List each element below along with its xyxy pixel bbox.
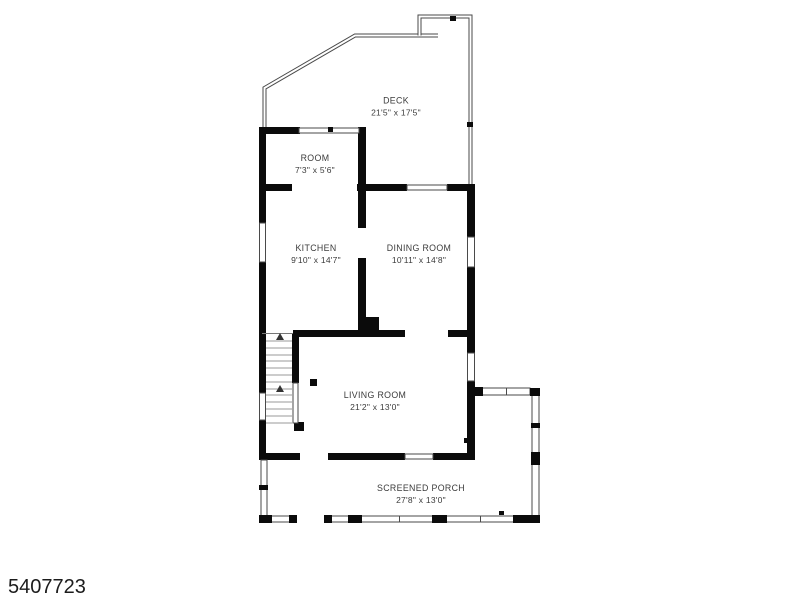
deck-railing — [265, 16, 474, 184]
wall-tick — [464, 438, 469, 443]
porch-post — [348, 515, 362, 523]
wall-segment — [467, 267, 475, 353]
room-labels: DECK 21'5" x 17'5" ROOM 7'3" x 5'6" KITC… — [291, 96, 465, 506]
porch-post — [531, 452, 540, 465]
window — [260, 393, 266, 420]
porch-post — [259, 515, 272, 523]
porch-post — [259, 485, 268, 490]
room-dims-living-room: 21'2" x 13'0" — [350, 402, 400, 412]
window — [468, 237, 475, 267]
porch-entry-opening — [296, 514, 325, 524]
porch-corner-post — [530, 388, 540, 396]
wall-segment — [467, 381, 475, 460]
room-label-deck: DECK — [383, 96, 409, 106]
stair-railing — [293, 383, 298, 423]
wall-segment — [467, 184, 475, 237]
room-dims-deck: 21'5" x 17'5" — [371, 108, 421, 118]
window — [405, 454, 433, 459]
room-dims-screened-porch: 27'8" x 13'0" — [396, 495, 446, 505]
living-room-post — [310, 379, 317, 386]
porch-post — [289, 515, 297, 523]
wall-segment — [328, 453, 405, 460]
floor-plan-page: DECK 21'5" x 17'5" ROOM 7'3" x 5'6" KITC… — [0, 0, 800, 600]
wall-segment — [259, 262, 266, 393]
wall-segment — [259, 420, 266, 460]
room-dims-room: 7'3" x 5'6" — [295, 165, 335, 175]
chimney-block — [361, 317, 379, 331]
stair-wall — [292, 333, 299, 383]
deck-post-tick — [467, 122, 473, 127]
room-label-living-room: LIVING ROOM — [344, 390, 407, 400]
stair-direction-arrow — [276, 333, 284, 340]
porch-corner-post — [513, 515, 540, 523]
room-dims-kitchen: 9'10" x 14'7" — [291, 255, 341, 265]
porch-post — [475, 387, 483, 396]
room-dims-dining-room: 10'11" x 14'8" — [392, 255, 446, 265]
porch-post — [531, 423, 540, 428]
room-label-screened-porch: SCREENED PORCH — [377, 483, 465, 493]
deck-post-tick — [450, 16, 456, 21]
deck-railing-right-inner — [420, 17, 471, 185]
room-label-kitchen: KITCHEN — [295, 243, 336, 253]
room-label-room: ROOM — [301, 153, 330, 163]
wall-segment — [293, 330, 405, 337]
window — [407, 185, 447, 190]
stair-treads — [266, 341, 292, 423]
floor-plan-drawing: DECK 21'5" x 17'5" ROOM 7'3" x 5'6" KITC… — [0, 0, 800, 600]
wall-segment — [358, 127, 366, 228]
window — [468, 353, 475, 381]
window-tick — [328, 127, 333, 132]
wall-segment — [259, 127, 266, 223]
porch-post-tick — [499, 511, 504, 515]
listing-id-watermark: 5407723 — [8, 576, 86, 598]
porch-post — [324, 515, 332, 523]
porch-post — [432, 515, 447, 523]
window — [260, 223, 266, 262]
room-label-dining-room: DINING ROOM — [387, 243, 451, 253]
deck-railing-right — [420, 17, 471, 185]
